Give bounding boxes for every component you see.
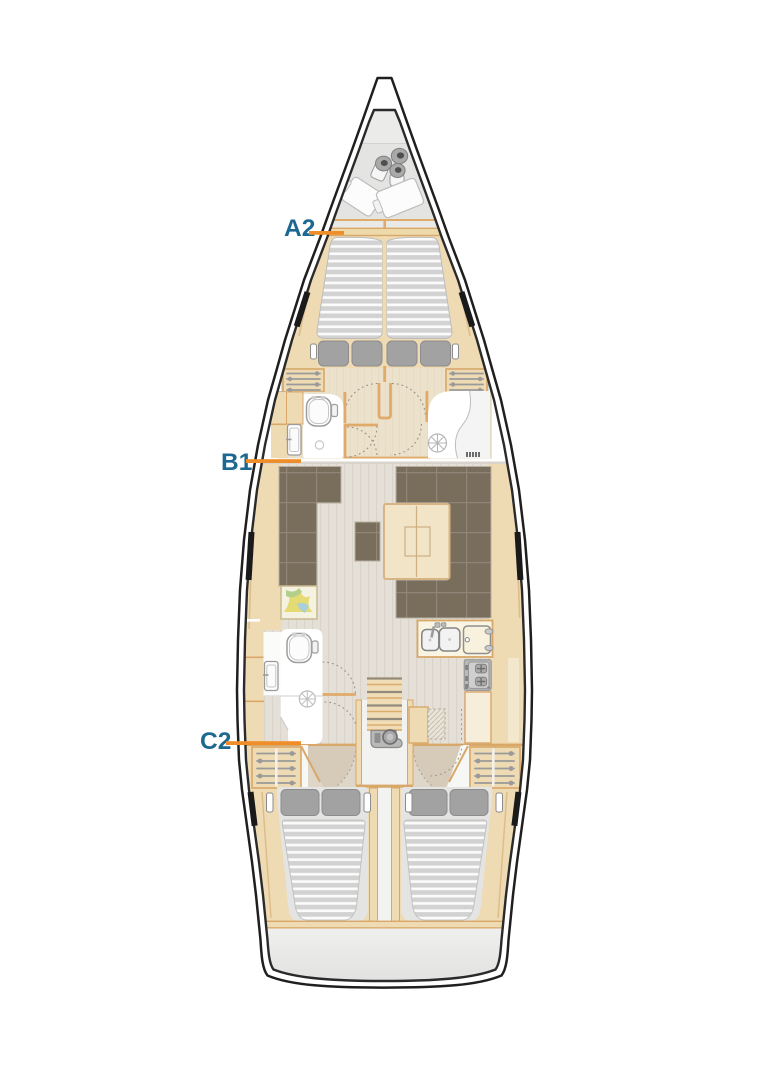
svg-text:A2: A2 [284,215,315,242]
